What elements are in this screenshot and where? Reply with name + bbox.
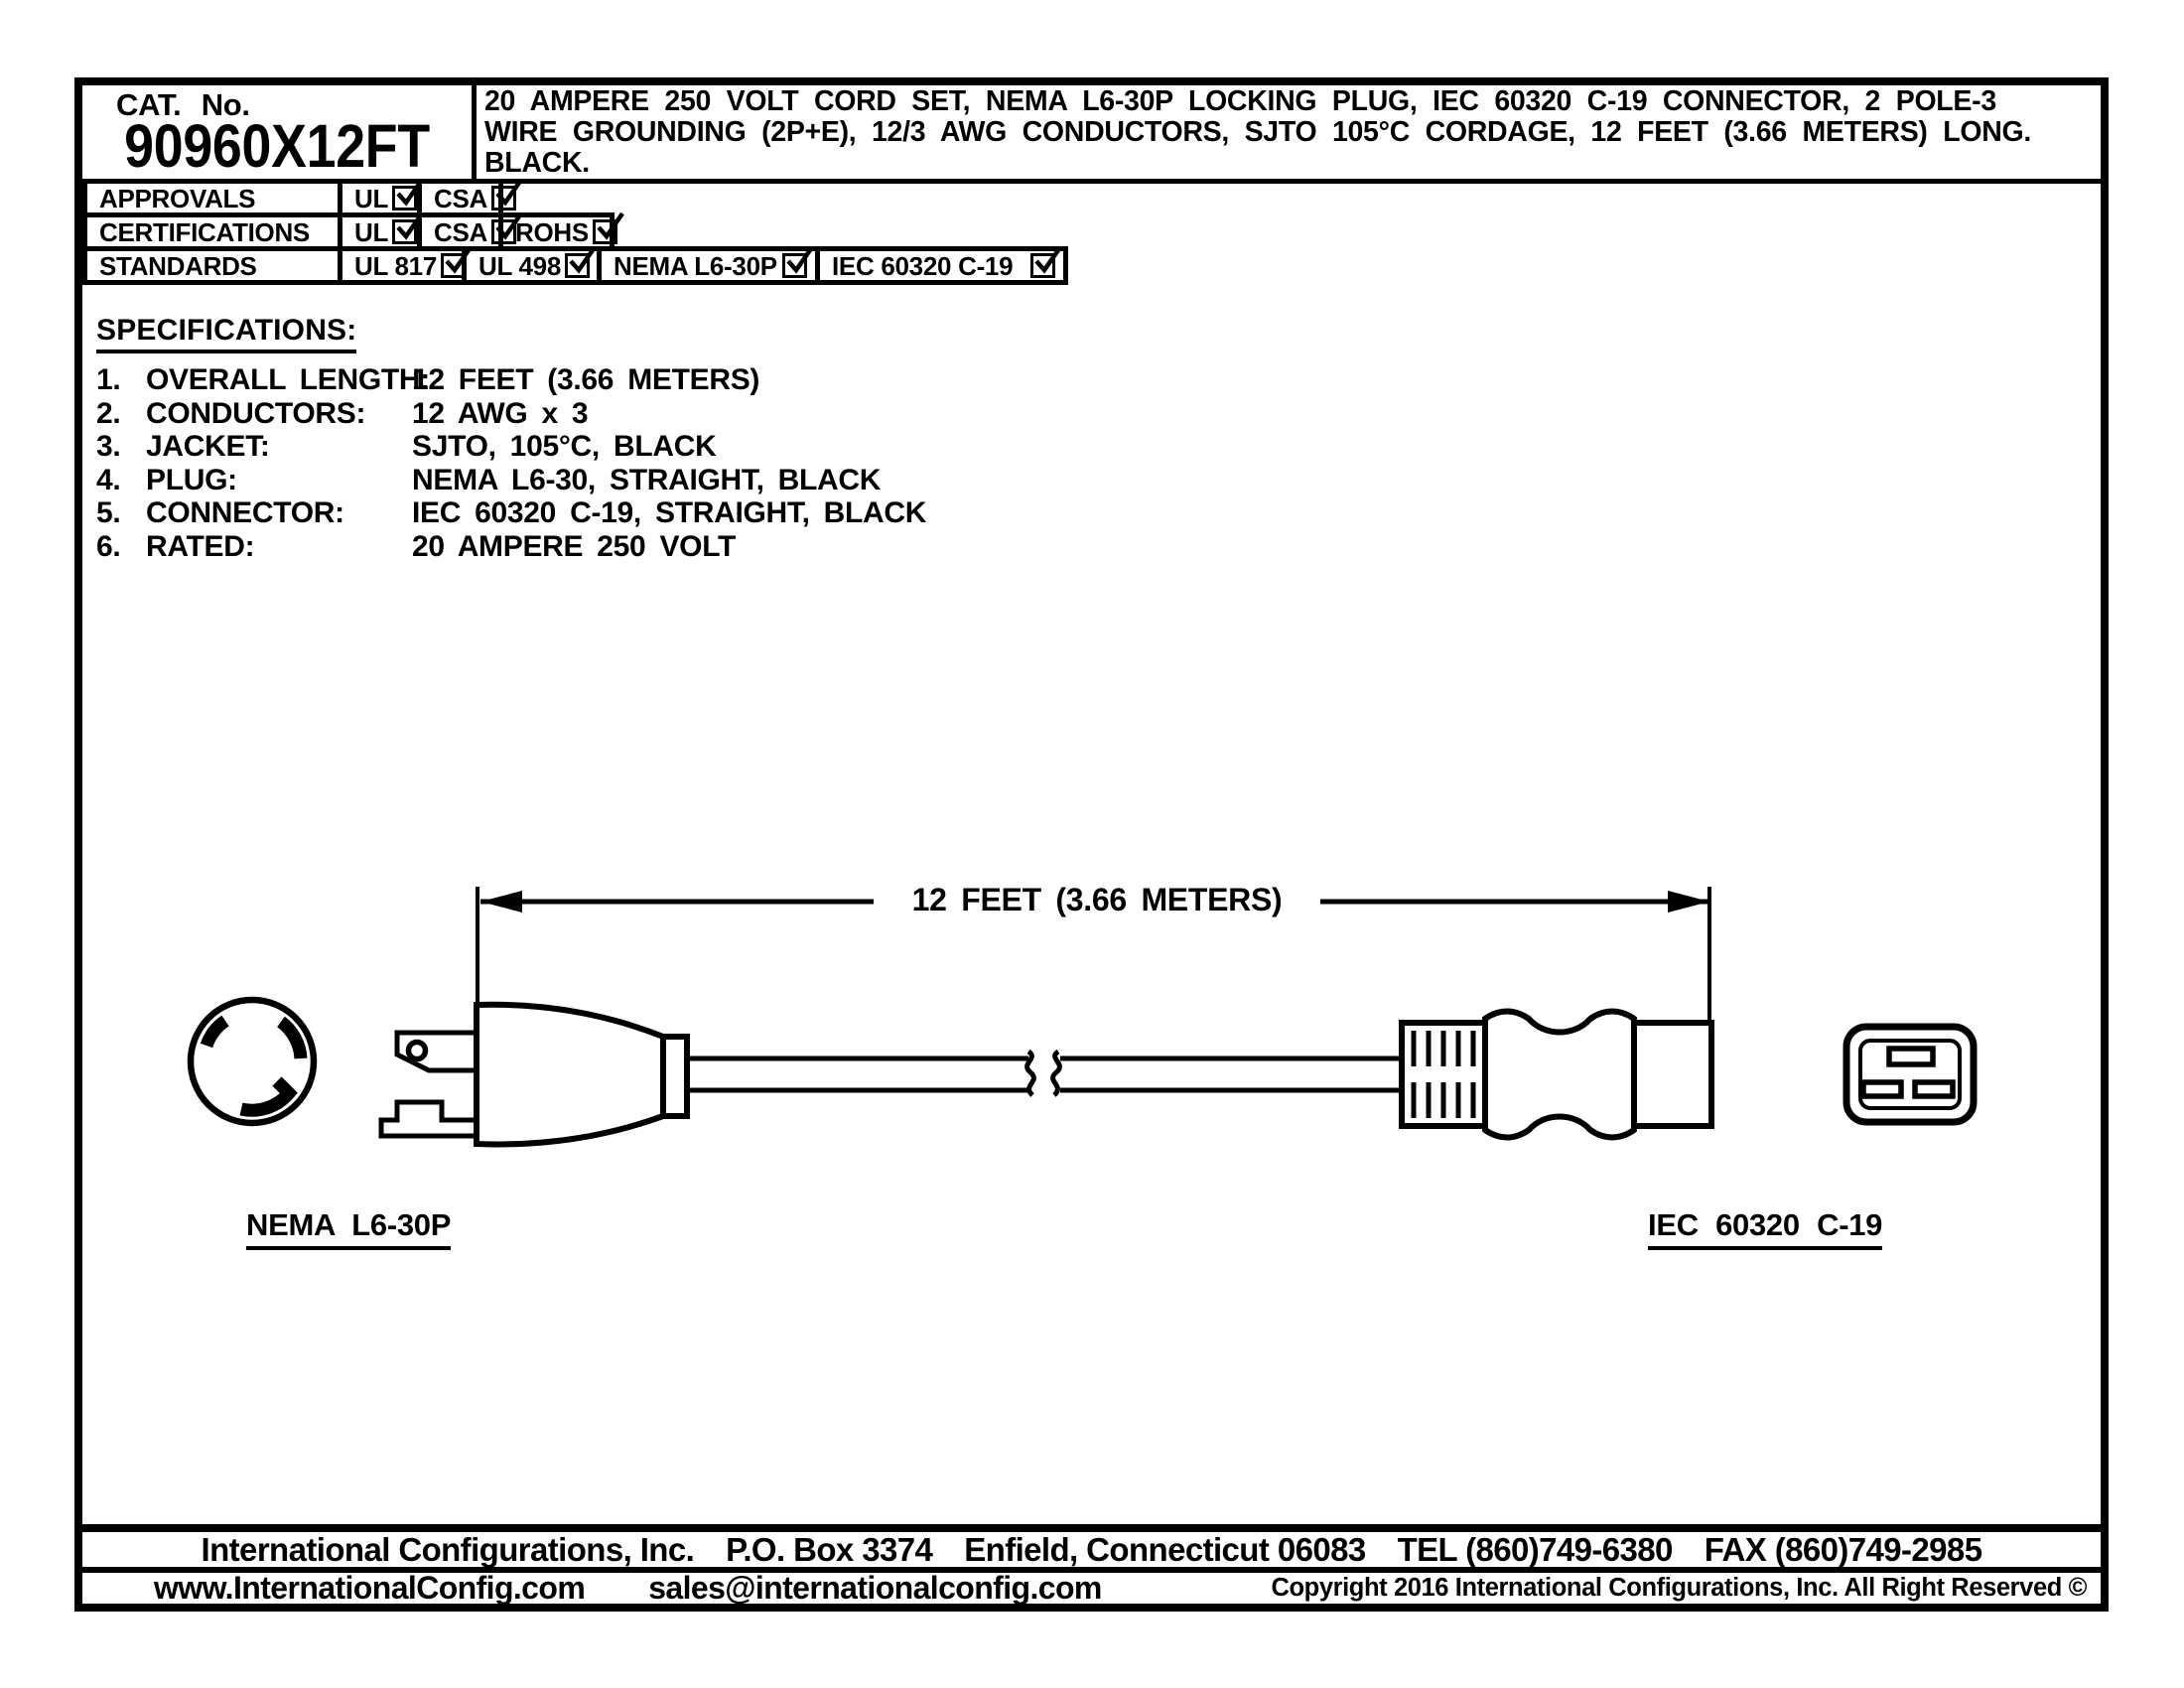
standards-row: STANDARDS UL 817 UL 498 NEMA L6-30P IEC … <box>82 246 1068 285</box>
sheet-border: CAT. No. 90960X12FT 20 AMPERE 250 VOLT C… <box>74 77 2109 1612</box>
checkbox-checked-icon <box>1030 253 1055 278</box>
spec-number: 5. <box>96 496 146 530</box>
spec-number: 6. <box>96 530 146 564</box>
spec-number: 4. <box>96 464 146 497</box>
standard-nema-l6-30p: NEMA L6-30P <box>597 251 815 280</box>
checkbox-checked-icon <box>782 253 807 278</box>
item-label: UL 498 <box>478 253 561 279</box>
cat-number-value: 90960X12FT <box>124 111 430 181</box>
spec-item: 1. OVERALL LENGTH: 12 FEET (3.66 METERS) <box>96 363 926 397</box>
spec-number: 1. <box>96 363 146 397</box>
footer-contact-row: International Configurations, Inc. P.O. … <box>82 1524 2101 1567</box>
copyright-notice: Copyright 2016 International Configurati… <box>1271 1574 2087 1603</box>
description-line: BLACK. <box>484 148 2101 179</box>
city-state: Enfield, Connecticut 06083 <box>964 1531 1365 1569</box>
checkbox-checked-icon <box>491 219 516 244</box>
description-box: 20 AMPERE 250 VOLT CORD SET, NEMA L6-30P… <box>477 85 2101 179</box>
specifications-section: SPECIFICATIONS: 1. OVERALL LENGTH: 12 FE… <box>96 314 926 563</box>
spec-number: 3. <box>96 430 146 464</box>
spec-value: 12 AWG x 3 <box>412 397 926 431</box>
checkbox-checked-icon <box>441 253 466 278</box>
item-label: CSA <box>434 186 487 211</box>
checkbox-checked-icon <box>491 186 516 211</box>
approval-csa: CSA <box>417 184 498 212</box>
spec-item: 6. RATED: 20 AMPERE 250 VOLT <box>96 530 926 564</box>
certification-ul: UL <box>338 217 417 246</box>
email-link: sales@internationalconfig.com <box>648 1570 1102 1607</box>
footer: International Configurations, Inc. P.O. … <box>82 1524 2101 1604</box>
cat-number-box: CAT. No. 90960X12FT <box>82 85 477 179</box>
standard-ul498: UL 498 <box>462 251 597 280</box>
spec-label: CONDUCTORS: <box>146 397 412 431</box>
item-label: IEC 60320 C-19 <box>832 253 1026 279</box>
spec-number: 2. <box>96 397 146 431</box>
spec-item: 3. JACKET: SJTO, 105°C, BLACK <box>96 430 926 464</box>
item-label: CSA <box>434 219 487 245</box>
item-label: UL <box>354 219 388 245</box>
title-block: CAT. No. 90960X12FT 20 AMPERE 250 VOLT C… <box>82 85 2101 184</box>
item-label: ROHS <box>515 219 589 245</box>
description-line: WIRE GROUNDING (2P+E), 12/3 AWG CONDUCTO… <box>484 117 2101 148</box>
connector-type-label: IEC 60320 C-19 <box>1648 1207 1882 1250</box>
row-label: CERTIFICATIONS <box>87 217 338 246</box>
telephone: TEL (860)749-6380 <box>1398 1531 1673 1569</box>
company-name: International Configurations, Inc. <box>202 1531 695 1569</box>
item-label: NEMA L6-30P <box>614 253 778 279</box>
specifications-heading: SPECIFICATIONS: <box>96 314 356 353</box>
certification-csa: CSA <box>417 217 498 246</box>
spec-item: 5. CONNECTOR: IEC 60320 C-19, STRAIGHT, … <box>96 496 926 530</box>
spec-item: 4. PLUG: NEMA L6-30, STRAIGHT, BLACK <box>96 464 926 497</box>
plug-type-label: NEMA L6-30P <box>246 1207 451 1250</box>
checkbox-checked-icon <box>392 186 417 211</box>
spec-item: 2. CONDUCTORS: 12 AWG x 3 <box>96 397 926 431</box>
checkbox-checked-icon <box>392 219 417 244</box>
approval-ul: UL <box>338 184 417 212</box>
po-box: P.O. Box 3374 <box>726 1531 932 1569</box>
dimension-label: 12 FEET (3.66 METERS) <box>874 882 1320 918</box>
row-label: APPROVALS <box>87 184 338 212</box>
certifications-row: CERTIFICATIONS UL CSA ROHS <box>82 212 614 251</box>
approvals-row: APPROVALS UL CSA <box>82 179 503 217</box>
datasheet-page: CAT. No. 90960X12FT 20 AMPERE 250 VOLT C… <box>0 0 2184 1688</box>
standard-iec-60320-c19: IEC 60320 C-19 <box>815 251 1063 280</box>
spec-label: PLUG: <box>146 464 412 497</box>
footer-web-row: www.InternationalConfig.com sales@intern… <box>82 1567 2101 1604</box>
spec-label: CONNECTOR: <box>146 496 412 530</box>
spec-label: JACKET: <box>146 430 412 464</box>
spec-value: IEC 60320 C-19, STRAIGHT, BLACK <box>412 496 926 530</box>
spec-label: OVERALL LENGTH: <box>146 363 412 397</box>
spec-value: 12 FEET (3.66 METERS) <box>412 363 926 397</box>
description-line: 20 AMPERE 250 VOLT CORD SET, NEMA L6-30P… <box>484 86 2101 117</box>
spec-value: NEMA L6-30, STRAIGHT, BLACK <box>412 464 926 497</box>
item-label: UL 817 <box>354 253 437 279</box>
website-link: www.InternationalConfig.com <box>154 1570 585 1607</box>
standard-ul817: UL 817 <box>338 251 462 280</box>
fax: FAX (860)749-2985 <box>1705 1531 1982 1569</box>
spec-value: 20 AMPERE 250 VOLT <box>412 530 926 564</box>
checkbox-checked-icon <box>593 219 617 244</box>
row-label: STANDARDS <box>87 251 338 280</box>
item-label: UL <box>354 186 388 211</box>
compliance-table: APPROVALS UL CSA CERTIFICATIONS UL CSA <box>82 179 1068 285</box>
checkbox-checked-icon <box>565 253 590 278</box>
spec-label: RATED: <box>146 530 412 564</box>
spec-value: SJTO, 105°C, BLACK <box>412 430 926 464</box>
